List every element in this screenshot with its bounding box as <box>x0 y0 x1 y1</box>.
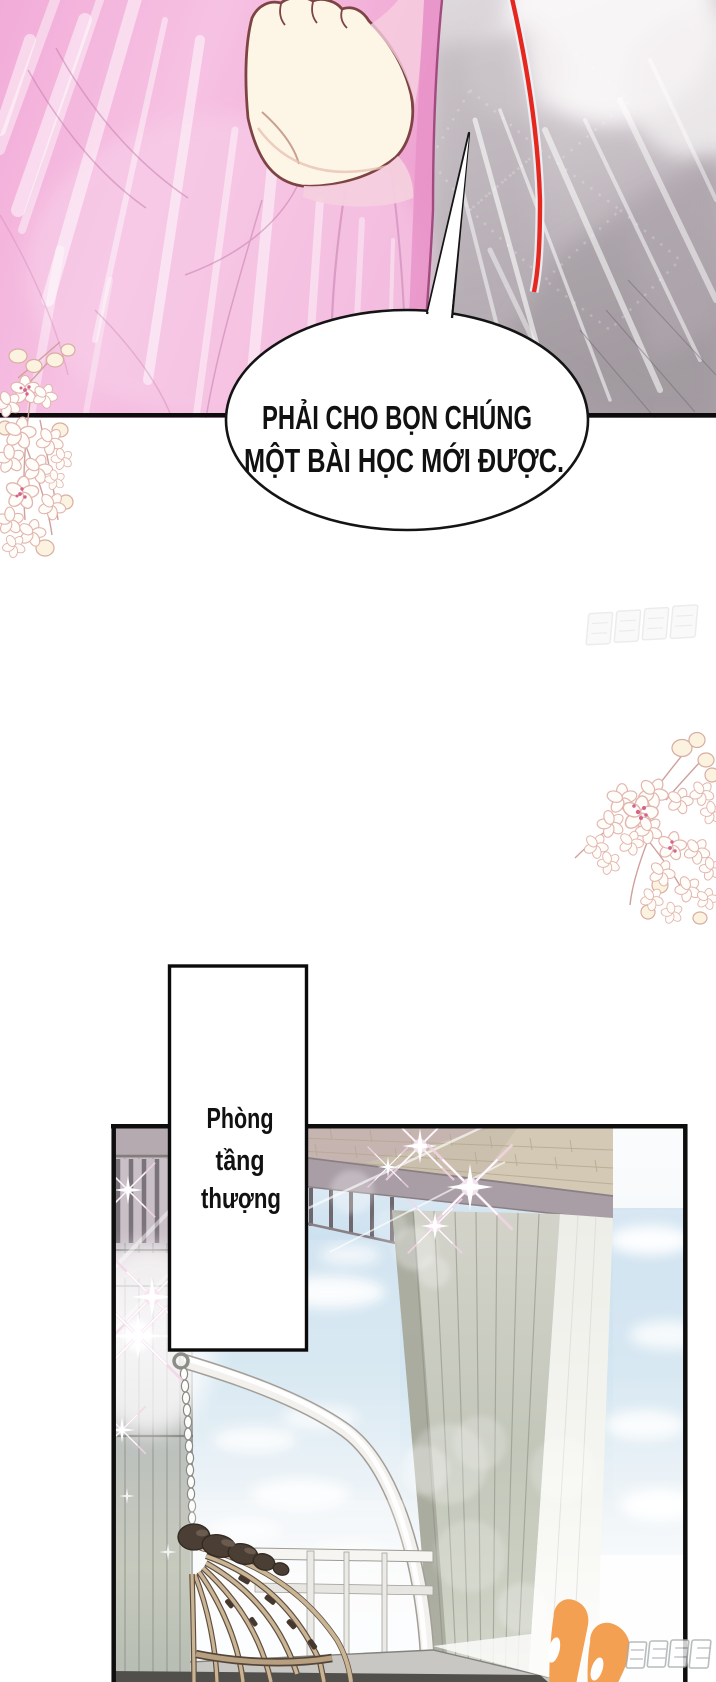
svg-text:PHẢI CHO BỌN CHÚNG: PHẢI CHO BỌN CHÚNG <box>262 399 532 436</box>
svg-text:tầng: tầng <box>216 1145 265 1177</box>
svg-text:MỘT BÀI HỌC MỚI ĐƯỢC.: MỘT BÀI HỌC MỚI ĐƯỢC. <box>244 441 564 479</box>
svg-text:Phòng: Phòng <box>207 1103 274 1135</box>
svg-text:thượng: thượng <box>201 1183 281 1215</box>
